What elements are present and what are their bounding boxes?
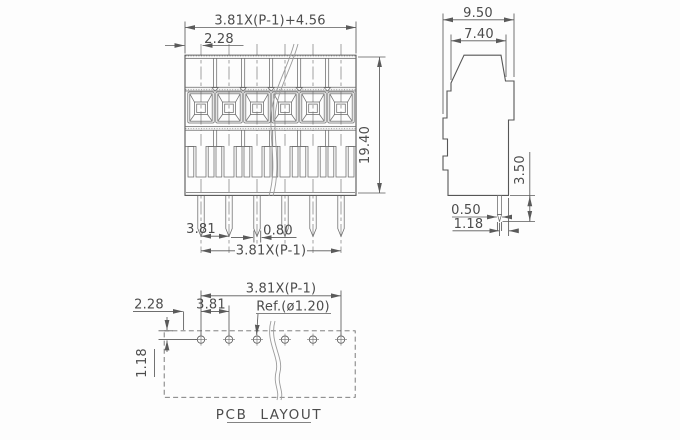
slot-cell (328, 146, 354, 177)
pcb-dim-edge-to-row: 1.18 (135, 317, 197, 378)
dim-body-depth-label: 7.40 (464, 27, 494, 42)
ref-hole-label: Ref.(ø1.20) (256, 300, 329, 315)
dim-edge-to-hole-label: 2.28 (134, 298, 164, 313)
side-pin (497, 196, 501, 222)
front-dim-pitch: 3.81 (186, 222, 229, 237)
dim-pin-length-label: 3.50 (513, 155, 528, 185)
front-dim-height: 19.40 (358, 57, 386, 193)
dim-pin-width-label: 0.80 (263, 224, 293, 239)
front-dim-pin-span: 3.81X(P-1) (201, 244, 341, 259)
pcb-outline (164, 331, 355, 398)
dim-pin-thickness-label: 0.50 (451, 203, 481, 218)
pcb-title-label: PCB LAYOUT (216, 407, 322, 423)
dim-edge-to-pin-label: 2.28 (204, 32, 234, 47)
front-hatch-band-b (186, 126, 356, 130)
pcb-break-line (270, 321, 282, 400)
dim-pin-to-edge-label: 1.18 (454, 217, 484, 232)
side-dim-pin-length: 3.50 (503, 152, 536, 222)
slot-cell (188, 146, 214, 177)
dim-hole-span-label: 3.81X(P-1) (246, 282, 317, 297)
pcb-layout-view: 3.81X(P-1) 3.81 2.28 1.18 Ref.(ø1.20) (133, 282, 355, 424)
dim-overall-width-label: 3.81X(P-1)+4.56 (214, 14, 325, 29)
dim-edge-to-row-label: 1.18 (135, 348, 150, 378)
pcb-ref-hole: Ref.(ø1.20) (256, 300, 331, 335)
technical-drawing-page: 3.81X(P-1)+4.56 2.28 19.40 3.81 0.80 (0, 0, 680, 440)
front-view: 3.81X(P-1)+4.56 2.28 19.40 3.81 0.80 (165, 14, 386, 259)
dim-hole-pitch-label: 3.81 (196, 298, 226, 313)
side-view: 9.50 7.40 3.50 0.50 (443, 6, 535, 236)
front-dim-edge-to-pin: 2.28 (165, 32, 244, 47)
front-body-outline (185, 55, 356, 195)
dim-pin-span-label: 3.81X(P-1) (236, 244, 307, 259)
pcb-hole (251, 334, 263, 346)
dim-pitch-label: 3.81 (186, 222, 216, 237)
slot-cell (300, 146, 326, 177)
front-partitions-upper (214, 58, 329, 87)
slot-cell (216, 146, 242, 177)
side-dim-body-depth: 7.40 (451, 27, 506, 80)
dim-overall-depth-label: 9.50 (463, 6, 493, 21)
pcb-title: PCB LAYOUT (216, 407, 322, 423)
side-body-outline (443, 55, 514, 195)
dim-height-label: 19.40 (358, 126, 373, 164)
front-dim-pin-width: 0.80 (231, 224, 297, 243)
pcb-dim-edge-to-hole: 2.28 (133, 298, 184, 331)
pcb-hole (279, 334, 291, 346)
terminal-block-drawing: 3.81X(P-1)+4.56 2.28 19.40 3.81 0.80 (0, 0, 680, 440)
slot-cell (244, 146, 270, 177)
front-top-band (186, 56, 356, 59)
pcb-hole (307, 334, 319, 346)
side-dim-overall-depth: 9.50 (443, 6, 514, 114)
lower-slot-cells (188, 146, 354, 177)
